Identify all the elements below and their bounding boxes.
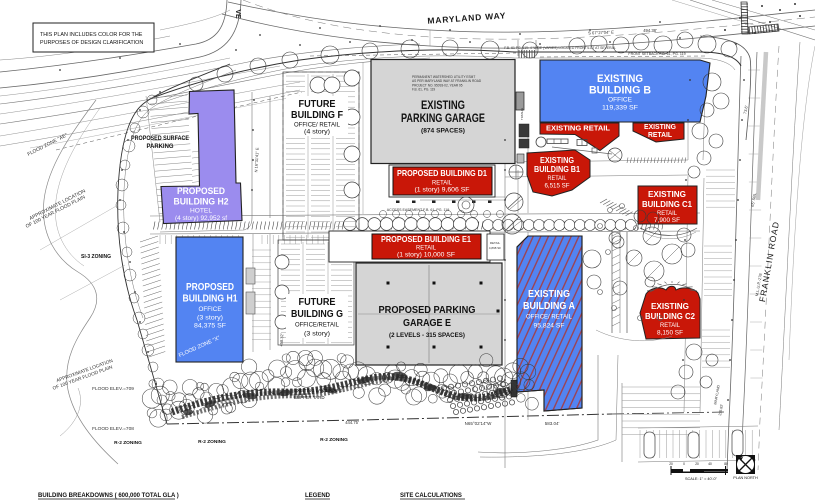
svg-text:(4 story) 92,952 sf: (4 story) 92,952 sf	[175, 215, 227, 222]
svg-text:R-2 ZONING: R-2 ZONING	[320, 437, 348, 443]
svg-text:BUILDING F: BUILDING F	[291, 109, 344, 121]
svg-text:EXISTING: EXISTING	[644, 124, 677, 131]
svg-text:FUTURE: FUTURE	[299, 296, 336, 308]
svg-text:RETAIL: RETAIL	[657, 210, 677, 217]
svg-text:0: 0	[683, 462, 685, 466]
svg-text:BUILDING B1: BUILDING B1	[534, 165, 580, 174]
svg-text:4,898 SF: 4,898 SF	[489, 246, 501, 250]
svg-text:PROPOSED SURFACE: PROPOSED SURFACE	[131, 135, 189, 142]
svg-text:EXISTING RETAIL: EXISTING RETAIL	[546, 124, 610, 133]
svg-text:HOTEL: HOTEL	[190, 208, 212, 215]
svg-text:(3 story): (3 story)	[304, 331, 330, 338]
svg-text:RETAIL: RETAIL	[660, 322, 681, 329]
svg-text:RETAIL: RETAIL	[490, 241, 501, 245]
svg-text:GARAGE E: GARAGE E	[403, 317, 451, 329]
svg-text:EXISTING: EXISTING	[540, 156, 574, 165]
svg-text:RETAIL: RETAIL	[416, 245, 436, 252]
svg-text:SI-3 ZONING: SI-3 ZONING	[81, 254, 111, 260]
svg-text:6,515 SF: 6,515 SF	[545, 183, 570, 190]
svg-text:PROPOSED PARKING: PROPOSED PARKING	[379, 304, 476, 316]
svg-text:EXISTING: EXISTING	[421, 100, 465, 112]
svg-text:84,375 SF: 84,375 SF	[194, 323, 226, 330]
svg-text:FLOOD ELEV.=708: FLOOD ELEV.=708	[92, 426, 134, 432]
svg-text:EXISTING: EXISTING	[651, 301, 689, 311]
svg-text:(1 story) 10,000 SF: (1 story) 10,000 SF	[397, 252, 455, 259]
svg-text:8,150 SF: 8,150 SF	[657, 330, 683, 337]
svg-text:S 67°27'04" E: S 67°27'04" E	[588, 30, 614, 36]
svg-text:PROPOSED: PROPOSED	[177, 186, 225, 197]
svg-text:494.38': 494.38'	[643, 28, 657, 33]
svg-text:BUFFER YARD: BUFFER YARD	[294, 395, 325, 400]
svg-text:119,339 SF: 119,339 SF	[602, 105, 638, 112]
svg-text:OFFICE: OFFICE	[608, 97, 632, 104]
svg-text:R-2 ZONING: R-2 ZONING	[114, 440, 142, 446]
svg-text:EXISTING: EXISTING	[648, 189, 686, 199]
svg-text:95,824 SF: 95,824 SF	[534, 323, 565, 330]
svg-text:PROPOSED BUILDING D1: PROPOSED BUILDING D1	[397, 169, 487, 178]
svg-text:BUILDING C2: BUILDING C2	[645, 311, 695, 321]
svg-text:EXISTING: EXISTING	[597, 73, 643, 85]
svg-text:OFFICE/ RETAIL: OFFICE/ RETAIL	[526, 314, 572, 321]
svg-text:EXISTING LANDSCAPE: EXISTING LANDSCAPE	[294, 388, 342, 393]
svg-text:PARKING: PARKING	[147, 143, 174, 150]
svg-text:RETAIL: RETAIL	[548, 175, 567, 182]
svg-text:TRASH &: TRASH &	[520, 108, 524, 120]
svg-text:FLOOD ELEV.=709: FLOOD ELEV.=709	[92, 386, 134, 392]
svg-text:BUILDING BREAKDOWNS ( 600,000: BUILDING BREAKDOWNS ( 600,000 TOTAL GLA …	[38, 493, 179, 499]
svg-text:RETAIL: RETAIL	[432, 180, 452, 187]
svg-text:PARKING GARAGE: PARKING GARAGE	[401, 113, 485, 125]
svg-text:PURPOSES OF DESIGN CLARIFICATI: PURPOSES OF DESIGN CLARIFICATION	[40, 40, 143, 46]
svg-text:R-2 ZONING: R-2 ZONING	[198, 439, 226, 445]
svg-text:(874 SPACES): (874 SPACES)	[421, 128, 465, 135]
svg-text:40: 40	[708, 462, 712, 466]
svg-text:458.32': 458.32'	[279, 333, 285, 346]
svg-text:444.75': 444.75'	[345, 420, 359, 425]
svg-text:FRONT SETBACK F.B. 61, PG. 119: FRONT SETBACK F.B. 61, PG. 119	[628, 52, 685, 56]
svg-text:LEGEND: LEGEND	[305, 493, 331, 499]
svg-text:SITE CALCULATIONS: SITE CALCULATIONS	[400, 493, 462, 499]
svg-text:N65°02'14"W: N65°02'14"W	[465, 421, 493, 426]
svg-text:20: 20	[669, 462, 673, 466]
svg-text:(4 story): (4 story)	[304, 129, 330, 136]
svg-text:(1 story) 9,606 SF: (1 story) 9,606 SF	[415, 187, 470, 194]
svg-text:BUILDING H1: BUILDING H1	[183, 294, 238, 305]
svg-text:80: 80	[724, 462, 728, 466]
svg-text:BUILDING B: BUILDING B	[589, 85, 651, 97]
svg-text:BUILDING G: BUILDING G	[291, 308, 343, 320]
svg-text:(2 LEVELS - 315 SPACES): (2 LEVELS - 315 SPACES)	[389, 332, 465, 339]
svg-text:OFFICE/ RETAIL: OFFICE/ RETAIL	[294, 122, 340, 129]
svg-text:THIS PLAN INCLUDES COLOR FOR T: THIS PLAN INCLUDES COLOR FOR THE	[40, 32, 143, 38]
svg-text:SCALE: 1" = 40'-0": SCALE: 1" = 40'-0"	[685, 477, 718, 481]
svg-text:PROPOSED BUILDING E1: PROPOSED BUILDING E1	[381, 235, 471, 244]
svg-text:BUILDING C1: BUILDING C1	[642, 199, 692, 209]
svg-text:OFFICE: OFFICE	[199, 306, 222, 313]
svg-text:583.04': 583.04'	[545, 421, 560, 426]
svg-text:VE: VE	[234, 9, 241, 19]
svg-text:EXISTING: EXISTING	[528, 289, 570, 300]
svg-text:BUILDING H2: BUILDING H2	[174, 197, 229, 208]
svg-text:OFFICE/RETAIL: OFFICE/RETAIL	[295, 322, 339, 329]
svg-text:PROPOSED: PROPOSED	[186, 282, 234, 293]
svg-text:(3 story): (3 story)	[197, 315, 223, 322]
svg-text:7,900 SF: 7,900 SF	[654, 217, 680, 224]
svg-text:20: 20	[695, 462, 699, 466]
svg-text:F.B. 61, PG. 119: F.B. 61, PG. 119	[412, 88, 435, 92]
svg-text:PLAN NORTH: PLAN NORTH	[733, 476, 758, 480]
svg-text:RETAIL: RETAIL	[648, 132, 673, 139]
svg-text:BUILDING A: BUILDING A	[523, 301, 575, 312]
svg-text:F.B. 61 PG. 119: 4' WIDE (VARI: F.B. 61 PG. 119: 4' WIDE (VARIES) LOCATE…	[504, 46, 616, 50]
svg-text:ACCESS EASEMENT F.B. 61, PG. 1: ACCESS EASEMENT F.B. 61, PG. 119	[387, 208, 450, 212]
